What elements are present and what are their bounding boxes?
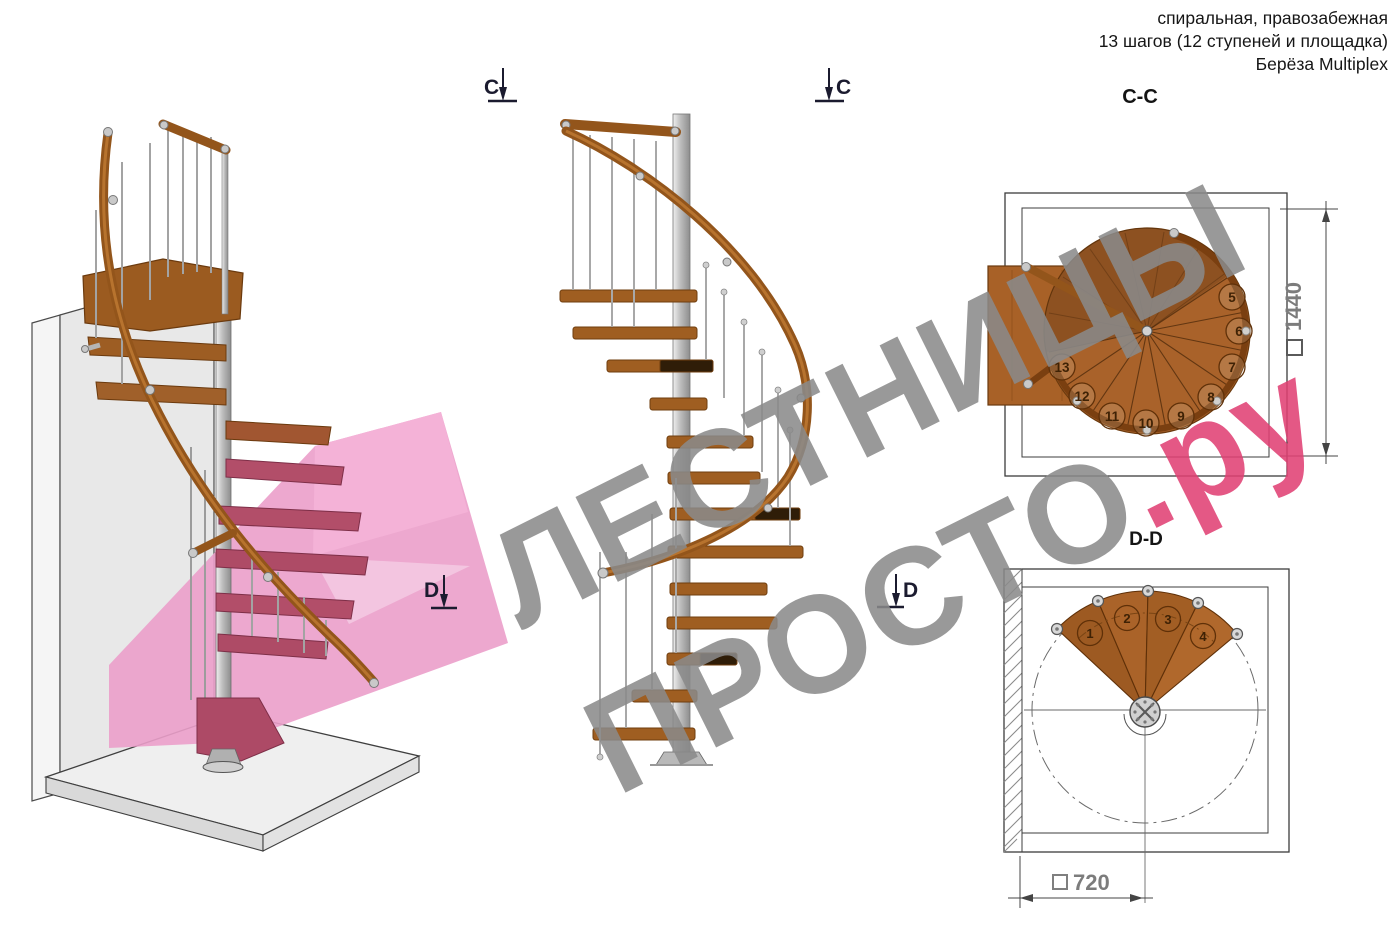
step-number: 2 xyxy=(1123,611,1130,626)
elevation-view: C C D xyxy=(484,68,918,765)
arrow-up-icon xyxy=(1322,209,1330,222)
stair-type-line: спиральная, правозабежная xyxy=(1099,7,1388,30)
title-block: спиральная, правозабежная 13 шагов (12 с… xyxy=(1099,7,1388,76)
plan-view-cc: C-C xyxy=(988,86,1338,476)
step-number: 7 xyxy=(1228,360,1236,375)
staircase-drawing: D xyxy=(0,0,1400,940)
steps-count-line: 13 шагов (12 ступеней и площадка) xyxy=(1099,30,1388,53)
step-number: 9 xyxy=(1177,409,1185,424)
step-number: 8 xyxy=(1207,390,1215,405)
section-marker-d-right: D xyxy=(877,574,918,607)
step-number: 13 xyxy=(1054,360,1070,375)
dimension-1440: 1440 xyxy=(1280,201,1338,464)
arrow-down-icon xyxy=(499,87,507,101)
marker-c-letter: C xyxy=(484,76,499,99)
dimension-value: 1440 xyxy=(1281,282,1306,331)
arrow-down-icon xyxy=(825,87,833,101)
square-symbol xyxy=(1053,875,1067,889)
step-number: 11 xyxy=(1105,409,1120,424)
marker-d-letter: D xyxy=(903,579,918,602)
square-symbol xyxy=(1287,340,1302,355)
top-post xyxy=(222,146,228,314)
arrow-down-icon xyxy=(892,593,900,607)
drawing-page: D xyxy=(0,0,1400,940)
plan-cc-title: C-C xyxy=(1122,86,1158,108)
marker-c-letter: C xyxy=(836,76,851,99)
dimension-value: 720 xyxy=(1073,870,1110,895)
section-marker-c-right: C xyxy=(815,68,851,101)
step-number: 3 xyxy=(1164,612,1171,627)
dimension-720: 720 xyxy=(1008,856,1153,908)
top-rail xyxy=(160,121,229,153)
marker-d-letter: D xyxy=(424,579,439,602)
step-number: 12 xyxy=(1074,389,1089,404)
material-line: Берёза Multiplex xyxy=(1099,53,1388,76)
plan-view-dd: D-D xyxy=(1004,529,1289,908)
perspective-view: D xyxy=(32,121,508,851)
step-number: 4 xyxy=(1199,629,1207,644)
section-marker-c-left: C xyxy=(484,68,517,101)
arrow-left-icon xyxy=(1020,894,1033,902)
step-number: 10 xyxy=(1138,416,1153,431)
step-number: 6 xyxy=(1235,324,1243,339)
step-number: 5 xyxy=(1228,290,1236,305)
pole-base xyxy=(650,752,713,765)
arrow-down-icon xyxy=(1322,443,1330,456)
arrow-right-icon xyxy=(1130,894,1143,902)
plan-dd-title: D-D xyxy=(1129,529,1163,550)
step-number: 1 xyxy=(1086,626,1093,641)
